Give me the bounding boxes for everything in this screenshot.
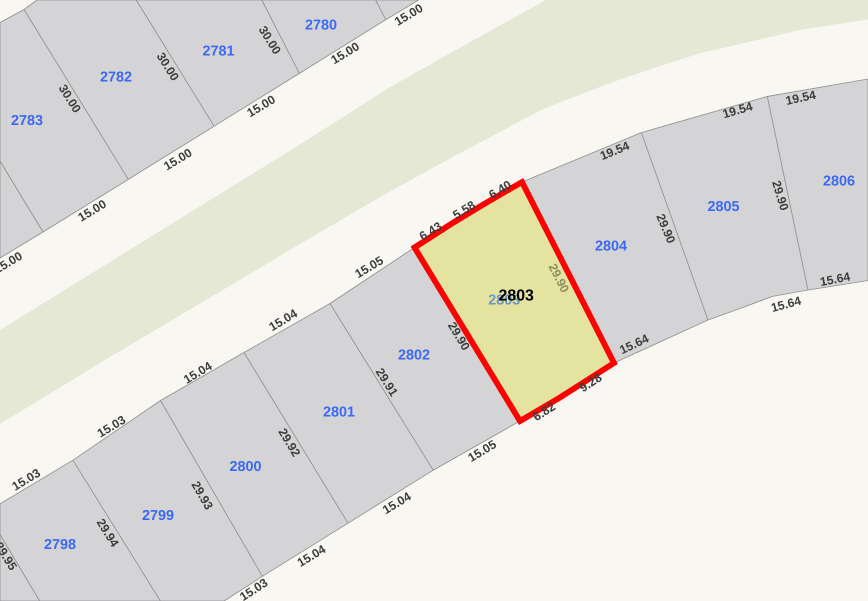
svg-text:2801: 2801 [323, 405, 355, 421]
svg-text:2799: 2799 [142, 508, 174, 524]
svg-text:2800: 2800 [229, 459, 261, 475]
svg-text:2802: 2802 [398, 348, 430, 364]
svg-text:2783: 2783 [11, 113, 43, 129]
svg-text:2782: 2782 [100, 70, 132, 86]
svg-text:2781: 2781 [202, 44, 234, 60]
svg-text:2806: 2806 [823, 174, 855, 190]
svg-text:2805: 2805 [707, 199, 739, 215]
svg-text:2804: 2804 [595, 239, 627, 255]
svg-text:2780: 2780 [305, 18, 337, 34]
svg-text:2798: 2798 [44, 537, 76, 553]
svg-text:2803: 2803 [499, 287, 535, 304]
